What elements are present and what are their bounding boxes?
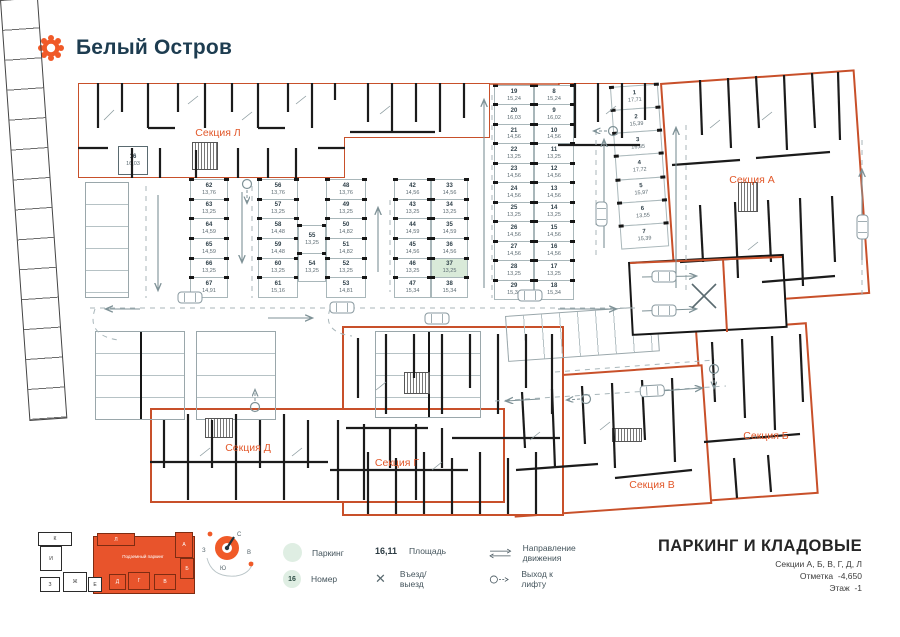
parking-stall-46[interactable]: 4613,25 (394, 258, 431, 279)
stairs-icon (612, 428, 642, 442)
parking-stall-62[interactable]: 6213,76 (190, 179, 228, 200)
car-icon (425, 313, 449, 324)
section-B-outline (695, 322, 819, 501)
minimap-block-A: А (175, 532, 193, 558)
brand: Белый Остров (36, 33, 232, 63)
parking-stall-38[interactable]: 3815,34 (431, 277, 468, 298)
parking-stall-12[interactable]: 1214,56 (534, 163, 574, 183)
legend-direction: Направление движения (488, 543, 587, 563)
parking-stall-11[interactable]: 1113,25 (534, 143, 574, 163)
parking-stall-57[interactable]: 5713,25 (258, 199, 298, 220)
minimap-block-I: И (40, 546, 62, 571)
parking-stall-36[interactable]: 3614,56 (431, 238, 468, 259)
minimap-block-L: Л (97, 533, 135, 546)
compass-west: З (202, 548, 206, 554)
stairs-icon (205, 418, 233, 438)
parking-stall-29[interactable]: 2915,34 (494, 280, 534, 300)
parking-group-56-61: 5613,765713,255814,485914,486013,256115,… (258, 180, 298, 298)
car-icon (330, 302, 354, 313)
parking-stall-34[interactable]: 3413,25 (431, 199, 468, 220)
minimap-block-G: Г (128, 572, 150, 590)
parking-stall-26[interactable]: 2614,56 (494, 221, 534, 241)
parking-stall-67[interactable]: 6714,91 (190, 277, 228, 298)
parking-stall-42[interactable]: 4214,56 (394, 179, 431, 200)
parking-stall-23[interactable]: 2314,56 (494, 163, 534, 183)
parking-stall-24[interactable]: 2414,56 (494, 182, 534, 202)
minimap-block-B: Б (180, 558, 194, 579)
parking-stall-53[interactable]: 5314,81 (326, 277, 366, 298)
parking-stall-13[interactable]: 1314,56 (534, 182, 574, 202)
parking-stall-65[interactable]: 6514,59 (190, 238, 228, 259)
parking-stall-8[interactable]: 815,24 (534, 85, 574, 105)
legend-area: 16,11 Площадь (375, 546, 446, 556)
parking-stall-28[interactable]: 2813,25 (494, 260, 534, 280)
sections-subtitle: Секции А, Б, В, Г, Д, Л (658, 559, 862, 569)
legend-lift: Выход к лифту (488, 569, 559, 589)
brand-name: Белый Остров (76, 36, 232, 60)
parking-group-42-47: 4214,564313,254414,594514,564613,254715,… (394, 180, 431, 298)
lift-exit-legend-icon (488, 572, 511, 587)
parking-group-54-55: 5513,255413,25 (298, 226, 326, 282)
parking-group-48-53: 4813,764913,255014,825114,825213,255314,… (326, 180, 366, 298)
parking-stall-9[interactable]: 916,02 (534, 104, 574, 124)
parking-stall-14[interactable]: 1413,25 (534, 202, 574, 222)
parking-stall-51[interactable]: 5114,82 (326, 238, 366, 259)
parking-stall-16[interactable]: 1614,56 (534, 241, 574, 261)
elevation-line: Отметка -4,650 (658, 571, 862, 581)
minimap-block-E: Е (88, 577, 102, 592)
page-title: ПАРКИНГ И КЛАДОВЫЕ (658, 537, 862, 556)
parking-stall-22[interactable]: 2213,25 (494, 143, 534, 163)
section-D-outline (150, 408, 505, 503)
car-icon (596, 202, 607, 226)
minimap-block-Z: З (40, 577, 60, 592)
parking-group-62-67: 6213,766313,256414,596514,596613,256714,… (190, 180, 228, 298)
minimap-block-V: В (154, 574, 176, 590)
legend-number: 16 Номер (283, 570, 337, 588)
parking-stall-58[interactable]: 5814,48 (258, 218, 298, 239)
entry-exit-ramp (628, 254, 788, 336)
parking-stall-55[interactable]: 5513,25 (298, 225, 326, 254)
legend-parking: Паркинг (283, 543, 344, 562)
parking-stall-37[interactable]: 3713,25 (431, 258, 468, 279)
compass: С В Ю З (196, 526, 266, 596)
parking-stall-19[interactable]: 1915,24 (494, 85, 534, 105)
parking-group-1-7: 117,71215,39316,85417,72515,97613,55715,… (610, 85, 669, 250)
parking-stall-52[interactable]: 5213,25 (326, 258, 366, 279)
parking-stall-33[interactable]: 3314,56 (431, 179, 468, 200)
stairs-icon (738, 182, 758, 212)
parking-stall-64[interactable]: 6414,59 (190, 218, 228, 239)
parking-group-8-18: 815,24916,021014,561113,251214,561314,56… (534, 86, 574, 300)
stairs-icon (192, 142, 218, 170)
parking-stall-27[interactable]: 2714,56 (494, 241, 534, 261)
section-label-L: Секция Л (195, 127, 240, 139)
parking-stall-43[interactable]: 4313,25 (394, 199, 431, 220)
empty-stalls (196, 331, 276, 420)
parking-stall-49[interactable]: 4913,25 (326, 199, 366, 220)
compass-south: Ю (220, 566, 226, 572)
parking-swatch-icon (283, 543, 302, 562)
section-label-B: Секция Б (743, 430, 788, 442)
compass-east: В (247, 550, 251, 556)
direction-legend-icon (488, 546, 513, 561)
legend-entry: ✕ Въезд/выезд (375, 569, 426, 589)
empty-stalls (95, 331, 185, 420)
minimap-block-Zh: Ж (63, 572, 87, 592)
parking-stall-25[interactable]: 2513,25 (494, 202, 534, 222)
stairs-icon (404, 372, 430, 394)
parking-stall-48[interactable]: 4813,76 (326, 179, 366, 200)
parking-stall-44[interactable]: 4414,59 (394, 218, 431, 239)
storage-room-16[interactable]: 16 16,03 (118, 146, 148, 175)
floor-line: Этаж -1 (658, 583, 862, 593)
section-label-V: Секция В (629, 479, 675, 491)
section-L-extension (344, 83, 490, 138)
parking-stall-15[interactable]: 1514,56 (534, 221, 574, 241)
minimap-block-K: К (38, 532, 72, 546)
parking-stall-45[interactable]: 4514,56 (394, 238, 431, 259)
parking-stall-10[interactable]: 1014,56 (534, 124, 574, 144)
parking-stall-66[interactable]: 6613,25 (190, 258, 228, 279)
minimap: Подземный паркинг К И З Ж Е Л А Б Д Г В (35, 528, 197, 600)
minimap-block-D: Д (109, 574, 126, 590)
parking-stall-35[interactable]: 3514,59 (431, 218, 468, 239)
parking-group-19-29: 1915,242016,032114,562213,252314,562414,… (494, 86, 534, 300)
empty-stalls (85, 182, 129, 298)
parking-stall-50[interactable]: 5014,82 (326, 218, 366, 239)
parking-stall-21[interactable]: 2114,56 (494, 124, 534, 144)
number-swatch-icon: 16 (283, 570, 301, 588)
title-block: ПАРКИНГ И КЛАДОВЫЕ Секции А, Б, В, Г, Д,… (658, 537, 862, 593)
entry-exit-legend-icon: ✕ (375, 571, 386, 587)
parking-stall-17[interactable]: 1713,25 (534, 260, 574, 280)
parking-stall-63[interactable]: 6313,25 (190, 199, 228, 220)
section-label-A: Секция А (729, 174, 775, 186)
parking-plan-page: Белый Остров Секция Л Секция А Секция Б … (0, 0, 900, 637)
parking-group-33-38: 3314,563413,253514,593614,563713,253815,… (431, 180, 468, 298)
parking-stall-56[interactable]: 5613,76 (258, 179, 298, 200)
right-building-strip (0, 0, 67, 421)
parking-stall-59[interactable]: 5914,48 (258, 238, 298, 259)
parking-stall-18[interactable]: 1815,34 (534, 280, 574, 300)
parking-stall-54[interactable]: 5413,25 (298, 253, 326, 282)
parking-stall-60[interactable]: 6013,25 (258, 258, 298, 279)
section-label-D: Секция Д (225, 442, 271, 454)
compass-north: С (237, 532, 242, 538)
parking-stall-20[interactable]: 2016,03 (494, 104, 534, 124)
parking-stall-7[interactable]: 715,39 (620, 222, 670, 249)
parking-stall-47[interactable]: 4715,34 (394, 277, 431, 298)
section-label-G: Секция Г (375, 457, 419, 469)
parking-stall-61[interactable]: 6115,16 (258, 277, 298, 298)
